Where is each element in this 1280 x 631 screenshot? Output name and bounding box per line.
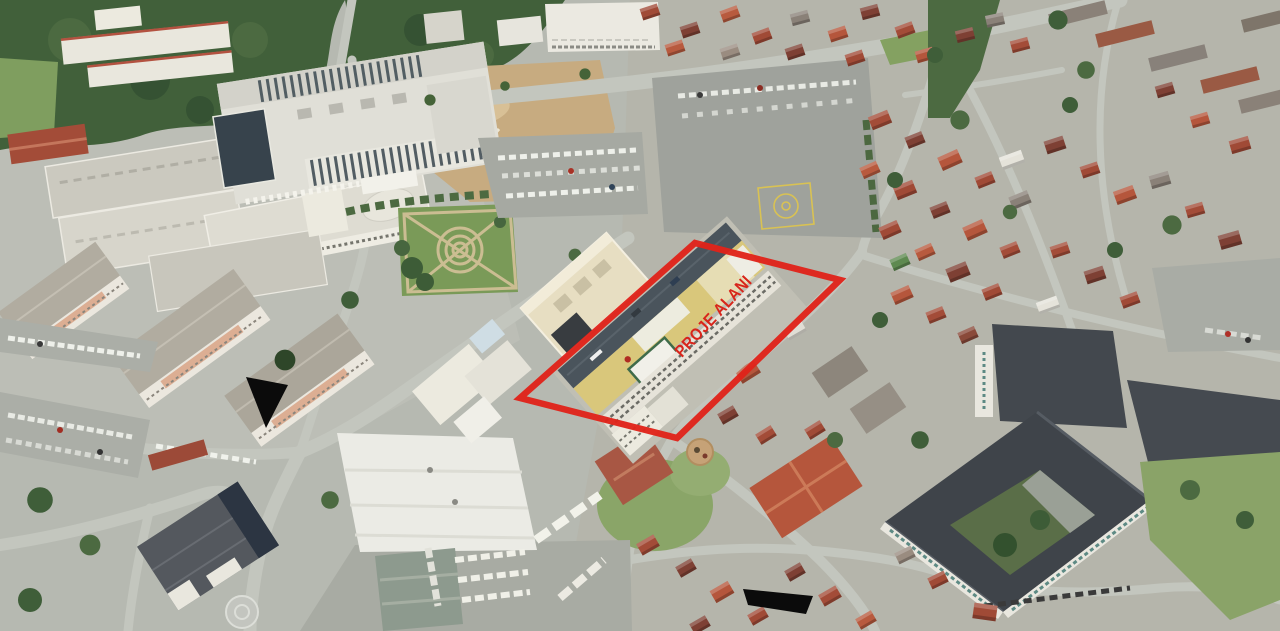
- car: [1245, 337, 1251, 343]
- tree: [579, 68, 590, 79]
- tree: [275, 350, 296, 371]
- car: [57, 427, 63, 433]
- circular-plaza: [226, 596, 258, 628]
- car: [697, 92, 703, 98]
- aerial-photo-canvas: PROJE ALANI: [0, 0, 1280, 631]
- sand-circle: [687, 439, 713, 465]
- car: [757, 85, 763, 91]
- tree: [321, 491, 339, 509]
- tree: [827, 432, 843, 448]
- parking-helipad-lot: [652, 58, 882, 238]
- tree: [950, 110, 969, 129]
- car: [609, 184, 615, 190]
- glass-tower: [213, 109, 276, 188]
- tree: [1077, 61, 1095, 79]
- parking-center: [478, 132, 648, 218]
- car: [1225, 331, 1231, 337]
- tree: [27, 487, 53, 513]
- tree: [424, 94, 435, 105]
- tree: [872, 312, 888, 328]
- green-roof-building: [375, 548, 463, 631]
- tree: [500, 81, 510, 91]
- tree: [1107, 242, 1123, 258]
- tree: [1162, 215, 1181, 234]
- house: [972, 603, 997, 622]
- car: [568, 168, 574, 174]
- aerial-photo: PROJE ALANI: [0, 0, 1280, 631]
- tree: [80, 535, 101, 556]
- tree: [887, 172, 903, 188]
- car: [97, 449, 103, 455]
- tree: [1003, 205, 1017, 219]
- tree: [911, 431, 929, 449]
- tree: [1048, 10, 1067, 29]
- tree: [341, 291, 359, 309]
- tree: [927, 47, 943, 63]
- car: [37, 341, 43, 347]
- tree: [18, 588, 42, 612]
- parking-school-north: [1152, 258, 1280, 352]
- tree: [1062, 97, 1078, 113]
